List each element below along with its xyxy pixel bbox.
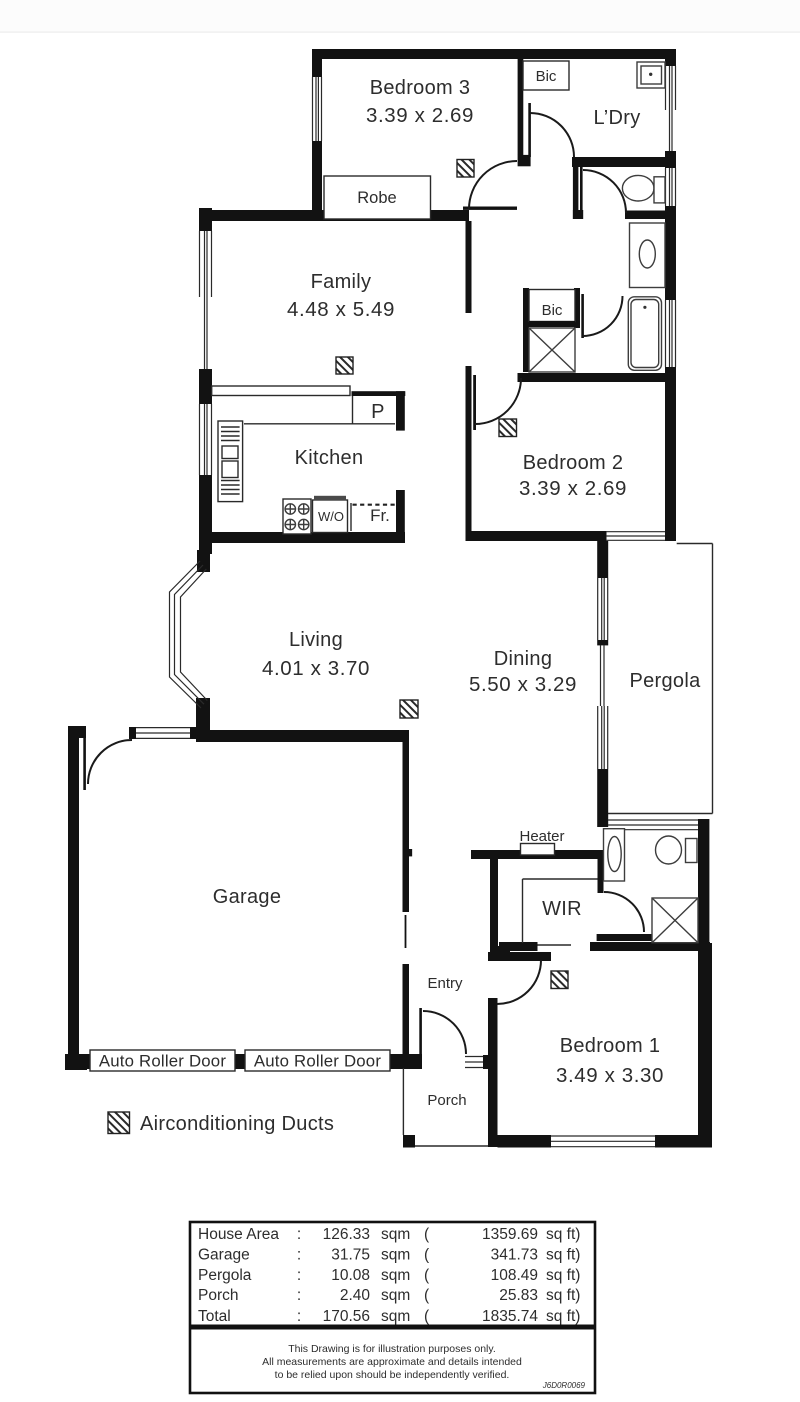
svg-text:Dining: Dining [494, 648, 553, 670]
svg-text:to be relied upon should be in: to be relied upon should be independentl… [275, 1369, 510, 1381]
svg-text::: : [297, 1287, 301, 1304]
svg-text::: : [297, 1267, 301, 1284]
svg-text:This Drawing is for illustrati: This Drawing is for illustration purpose… [288, 1343, 496, 1355]
svg-text:1359.69: 1359.69 [482, 1226, 538, 1243]
svg-text:sq ft): sq ft) [546, 1308, 580, 1325]
svg-text:J6D0R0069: J6D0R0069 [542, 1381, 586, 1390]
svg-text:Garage: Garage [213, 886, 282, 908]
svg-text:W/O: W/O [318, 509, 344, 524]
svg-text::: : [297, 1226, 301, 1243]
svg-text:WIR: WIR [542, 898, 582, 920]
svg-text:sq ft): sq ft) [546, 1226, 580, 1243]
svg-text:4.01 x 3.70: 4.01 x 3.70 [262, 657, 370, 680]
svg-text:10.08: 10.08 [331, 1267, 370, 1284]
svg-text:Fr.: Fr. [370, 506, 390, 525]
svg-text:Auto Roller Door: Auto Roller Door [254, 1052, 381, 1071]
svg-text:Bedroom 1: Bedroom 1 [560, 1035, 661, 1057]
svg-text:Airconditioning Ducts: Airconditioning Ducts [140, 1113, 334, 1135]
svg-text:sqm: sqm [381, 1287, 410, 1304]
svg-text:(: ( [424, 1308, 430, 1325]
svg-text:Pergola: Pergola [629, 670, 701, 692]
svg-text:All measurements are approxima: All measurements are approximate and det… [262, 1356, 522, 1368]
svg-text:Kitchen: Kitchen [295, 447, 364, 469]
svg-text:341.73: 341.73 [491, 1247, 538, 1264]
svg-text:5.50 x 3.29: 5.50 x 3.29 [469, 673, 577, 696]
svg-text:Bic: Bic [542, 302, 563, 319]
svg-text:(: ( [424, 1267, 430, 1284]
svg-text:House Area: House Area [198, 1226, 279, 1243]
svg-text:sqm: sqm [381, 1308, 410, 1325]
svg-text:Entry: Entry [427, 975, 463, 992]
svg-text:(: ( [424, 1247, 430, 1264]
svg-text:Porch: Porch [427, 1092, 466, 1109]
svg-text:Robe: Robe [357, 189, 396, 207]
svg-text:sq ft): sq ft) [546, 1267, 580, 1284]
svg-text:sqm: sqm [381, 1267, 410, 1284]
svg-text:4.48 x 5.49: 4.48 x 5.49 [287, 298, 395, 321]
svg-text:(: ( [424, 1226, 430, 1243]
svg-text:3.49 x 3.30: 3.49 x 3.30 [556, 1064, 664, 1087]
svg-text:Heater: Heater [519, 828, 564, 845]
svg-text:108.49: 108.49 [491, 1267, 538, 1284]
svg-text:3.39 x 2.69: 3.39 x 2.69 [366, 104, 474, 127]
svg-text:1835.74: 1835.74 [482, 1308, 538, 1325]
svg-text:Porch: Porch [198, 1287, 239, 1304]
svg-text:126.33: 126.33 [323, 1226, 370, 1243]
svg-text:Bic: Bic [536, 68, 557, 85]
svg-text:(: ( [424, 1287, 430, 1304]
svg-text:sq ft): sq ft) [546, 1287, 580, 1304]
svg-text:P: P [371, 401, 385, 423]
svg-text:L’Dry: L’Dry [593, 107, 640, 129]
svg-text:Garage: Garage [198, 1247, 250, 1264]
svg-text:2.40: 2.40 [340, 1287, 371, 1304]
svg-text:sqm: sqm [381, 1226, 410, 1243]
svg-text:Auto Roller Door: Auto Roller Door [99, 1052, 226, 1071]
svg-text:Bedroom 3: Bedroom 3 [370, 77, 471, 99]
svg-text:25.83: 25.83 [499, 1287, 538, 1304]
svg-text:170.56: 170.56 [323, 1308, 370, 1325]
svg-text::: : [297, 1308, 301, 1325]
svg-text:Living: Living [289, 629, 343, 651]
svg-text:sqm: sqm [381, 1247, 410, 1264]
svg-text:Total: Total [198, 1308, 231, 1325]
svg-text:sq ft): sq ft) [546, 1247, 580, 1264]
svg-text:3.39 x 2.69: 3.39 x 2.69 [519, 477, 627, 500]
svg-text:Bedroom 2: Bedroom 2 [523, 452, 624, 474]
svg-text:Family: Family [311, 271, 372, 293]
svg-text:Pergola: Pergola [198, 1267, 252, 1284]
svg-text:31.75: 31.75 [331, 1247, 370, 1264]
svg-text::: : [297, 1247, 301, 1264]
